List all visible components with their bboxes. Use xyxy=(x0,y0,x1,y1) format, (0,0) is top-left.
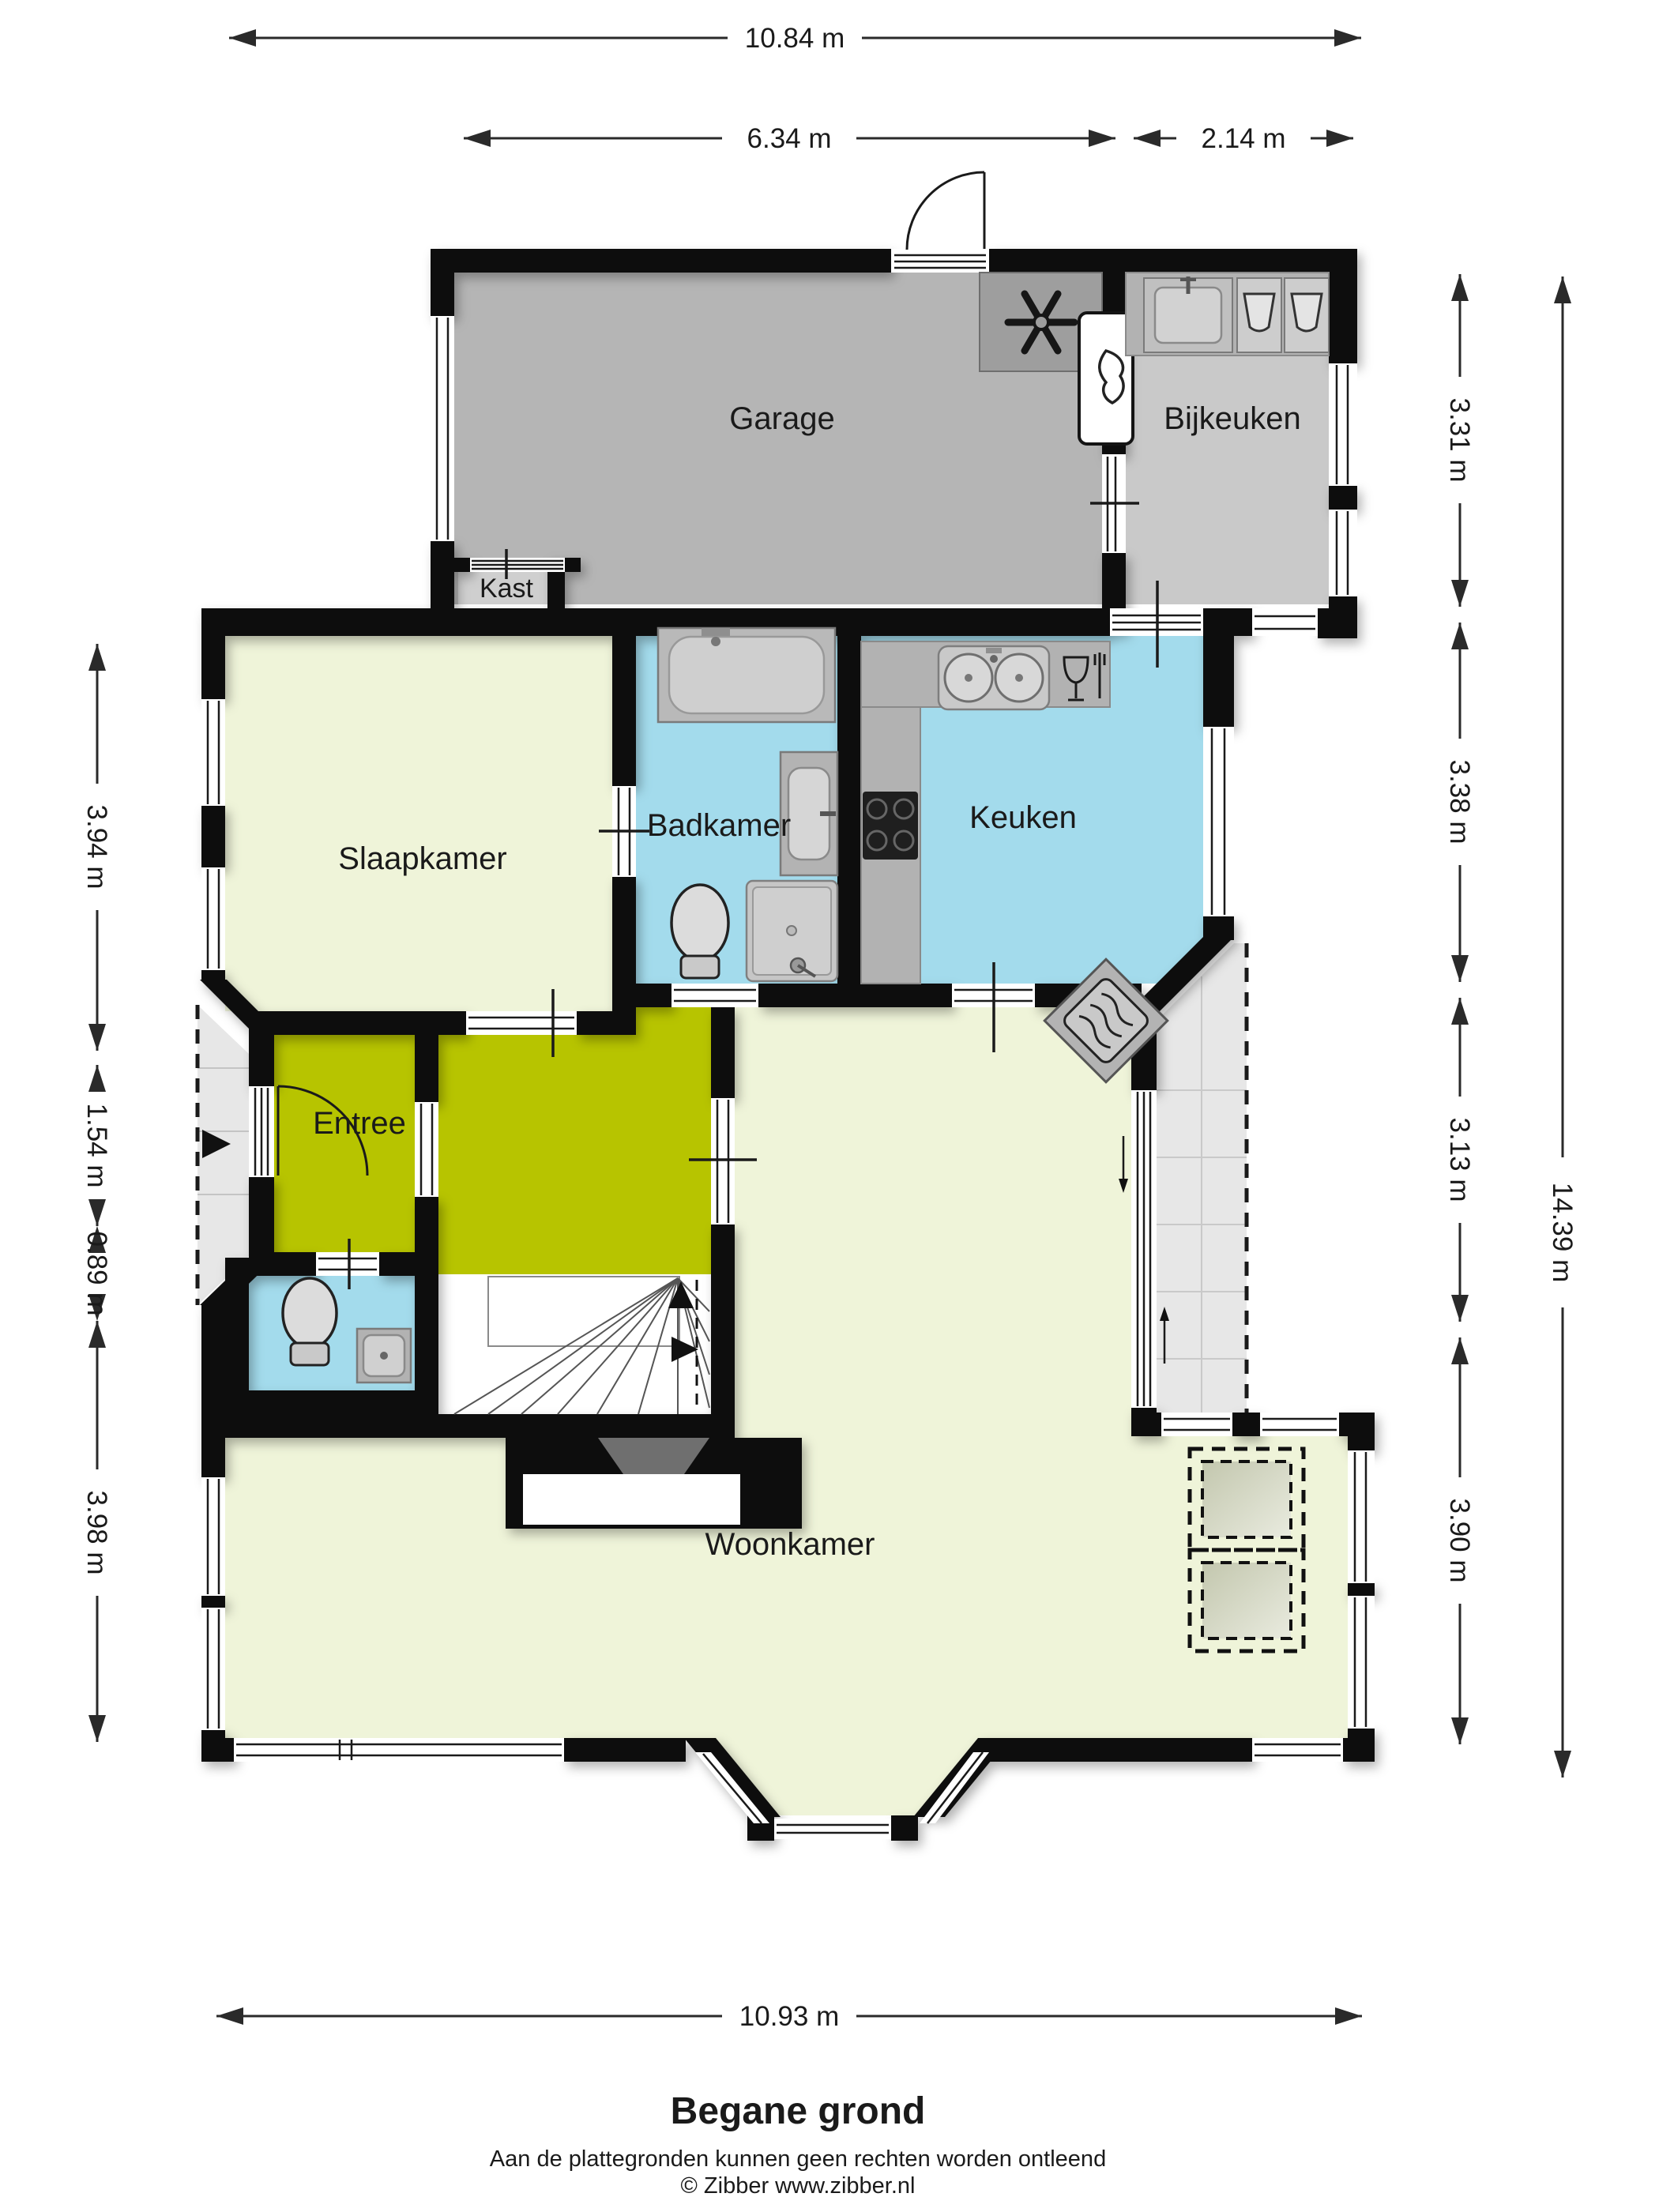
dim-left-slaapkamer: 3.94 m xyxy=(81,805,112,890)
dim-bottom-total: 10.93 m xyxy=(739,2001,839,2032)
dim-left-toilet: 0.89 m xyxy=(81,1232,112,1316)
floorplan-canvas: Garage Bijkeuken Kast Slaapkamer Badkame… xyxy=(0,0,1659,2212)
dim-top-garage: 6.34 m xyxy=(747,123,832,154)
hob-icon xyxy=(863,792,918,860)
page-title: Begane grond xyxy=(671,2090,926,2132)
room-label-bijkeuken: Bijkeuken xyxy=(1164,401,1300,436)
dim-right-garage: 3.31 m xyxy=(1444,398,1475,483)
dim-top-total: 10.84 m xyxy=(745,23,845,54)
stairs-floor xyxy=(438,1274,711,1414)
room-hal-floor xyxy=(438,1007,711,1274)
toilet-icon xyxy=(671,885,728,978)
dim-right-woonkamer: 3.90 m xyxy=(1444,1499,1475,1583)
room-label-woonkamer: Woonkamer xyxy=(705,1527,875,1562)
skylight-icon xyxy=(1190,1449,1303,1651)
room-label-slaapkamer: Slaapkamer xyxy=(338,841,506,876)
toilet-icon xyxy=(283,1278,337,1365)
dim-left-entree: 1.54 m xyxy=(81,1104,112,1188)
terrace-tiles xyxy=(1157,943,1247,1430)
room-label-badkamer: Badkamer xyxy=(647,808,791,843)
caption: Begane grond Aan de plattegronden kunnen… xyxy=(490,2090,1106,2199)
floorplan-page: Garage Bijkeuken Kast Slaapkamer Badkame… xyxy=(0,0,1659,2212)
room-label-kast: Kast xyxy=(480,574,534,604)
room-entree-floor xyxy=(273,1035,415,1252)
double-sink-icon xyxy=(939,646,1049,709)
washbasin-icon xyxy=(357,1329,411,1382)
footer-copyright: © Zibber www.zibber.nl xyxy=(681,2173,916,2199)
boiler-flame-icon xyxy=(1079,313,1133,444)
dim-left-woonkamer: 3.98 m xyxy=(81,1491,112,1575)
shower-icon xyxy=(747,881,837,981)
room-slaapkamer-floor xyxy=(225,636,612,1011)
room-label-keuken: Keuken xyxy=(969,800,1077,835)
footer-disclaimer: Aan de plattegronden kunnen geen rechten… xyxy=(490,2146,1106,2172)
dim-right-total: 14.39 m xyxy=(1547,1183,1578,1282)
room-label-entree: Entree xyxy=(313,1106,406,1141)
room-label-garage: Garage xyxy=(729,401,834,436)
dim-right-hal: 3.13 m xyxy=(1444,1118,1475,1202)
dim-right-keuken: 3.38 m xyxy=(1444,760,1475,845)
dim-top-bijkeuken: 2.14 m xyxy=(1202,123,1286,154)
bathtub-icon xyxy=(658,628,835,722)
